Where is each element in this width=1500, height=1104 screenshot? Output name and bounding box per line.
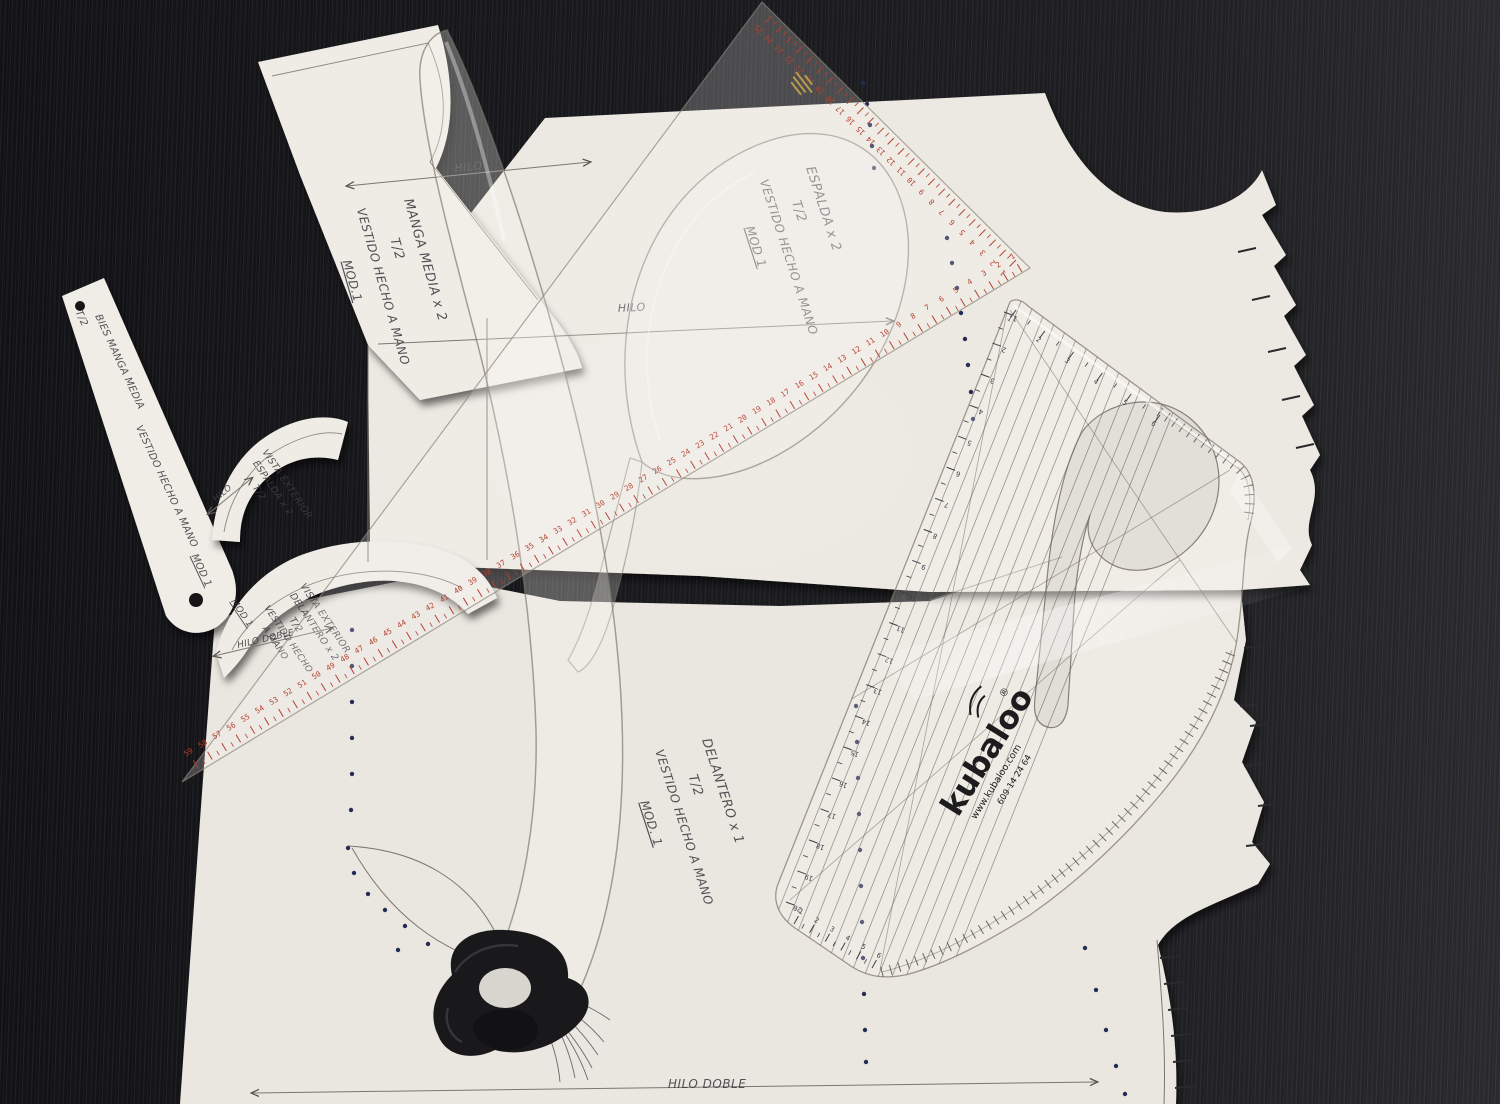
dot-mark	[426, 942, 430, 946]
dot-mark	[1114, 1064, 1118, 1068]
dot-mark	[863, 1028, 867, 1032]
dot-mark	[403, 924, 407, 928]
dot-mark	[862, 992, 866, 996]
dot-mark	[966, 363, 970, 367]
dot-mark	[349, 808, 353, 812]
dot-mark	[1104, 1028, 1108, 1032]
dot-mark	[963, 337, 967, 341]
dot-mark	[350, 736, 354, 740]
dot-mark	[959, 311, 963, 315]
dot-mark	[350, 700, 354, 704]
fabric-knot-opening	[479, 968, 531, 1008]
dot-mark	[396, 948, 400, 952]
dot-mark	[352, 871, 356, 875]
dot-mark	[1094, 988, 1098, 992]
dot-mark	[366, 892, 370, 896]
dot-mark	[350, 772, 354, 776]
dot-mark	[1083, 946, 1087, 950]
dot-mark	[346, 846, 350, 850]
strip-punch-hole-2	[189, 593, 203, 607]
photo-of-sewing-pattern-table: HILO MANGA MEDIA x 2 T/2 VESTIDO HECHO A…	[0, 0, 1500, 1104]
dot-mark	[864, 1060, 868, 1064]
dot-mark	[861, 81, 865, 85]
dot-mark	[969, 390, 973, 394]
grainline-label-bottom: HILO DOBLE	[668, 1077, 746, 1091]
dot-mark	[383, 908, 387, 912]
dot-mark	[1123, 1092, 1127, 1096]
scene-canvas: HILO MANGA MEDIA x 2 T/2 VESTIDO HECHO A…	[0, 0, 1500, 1104]
